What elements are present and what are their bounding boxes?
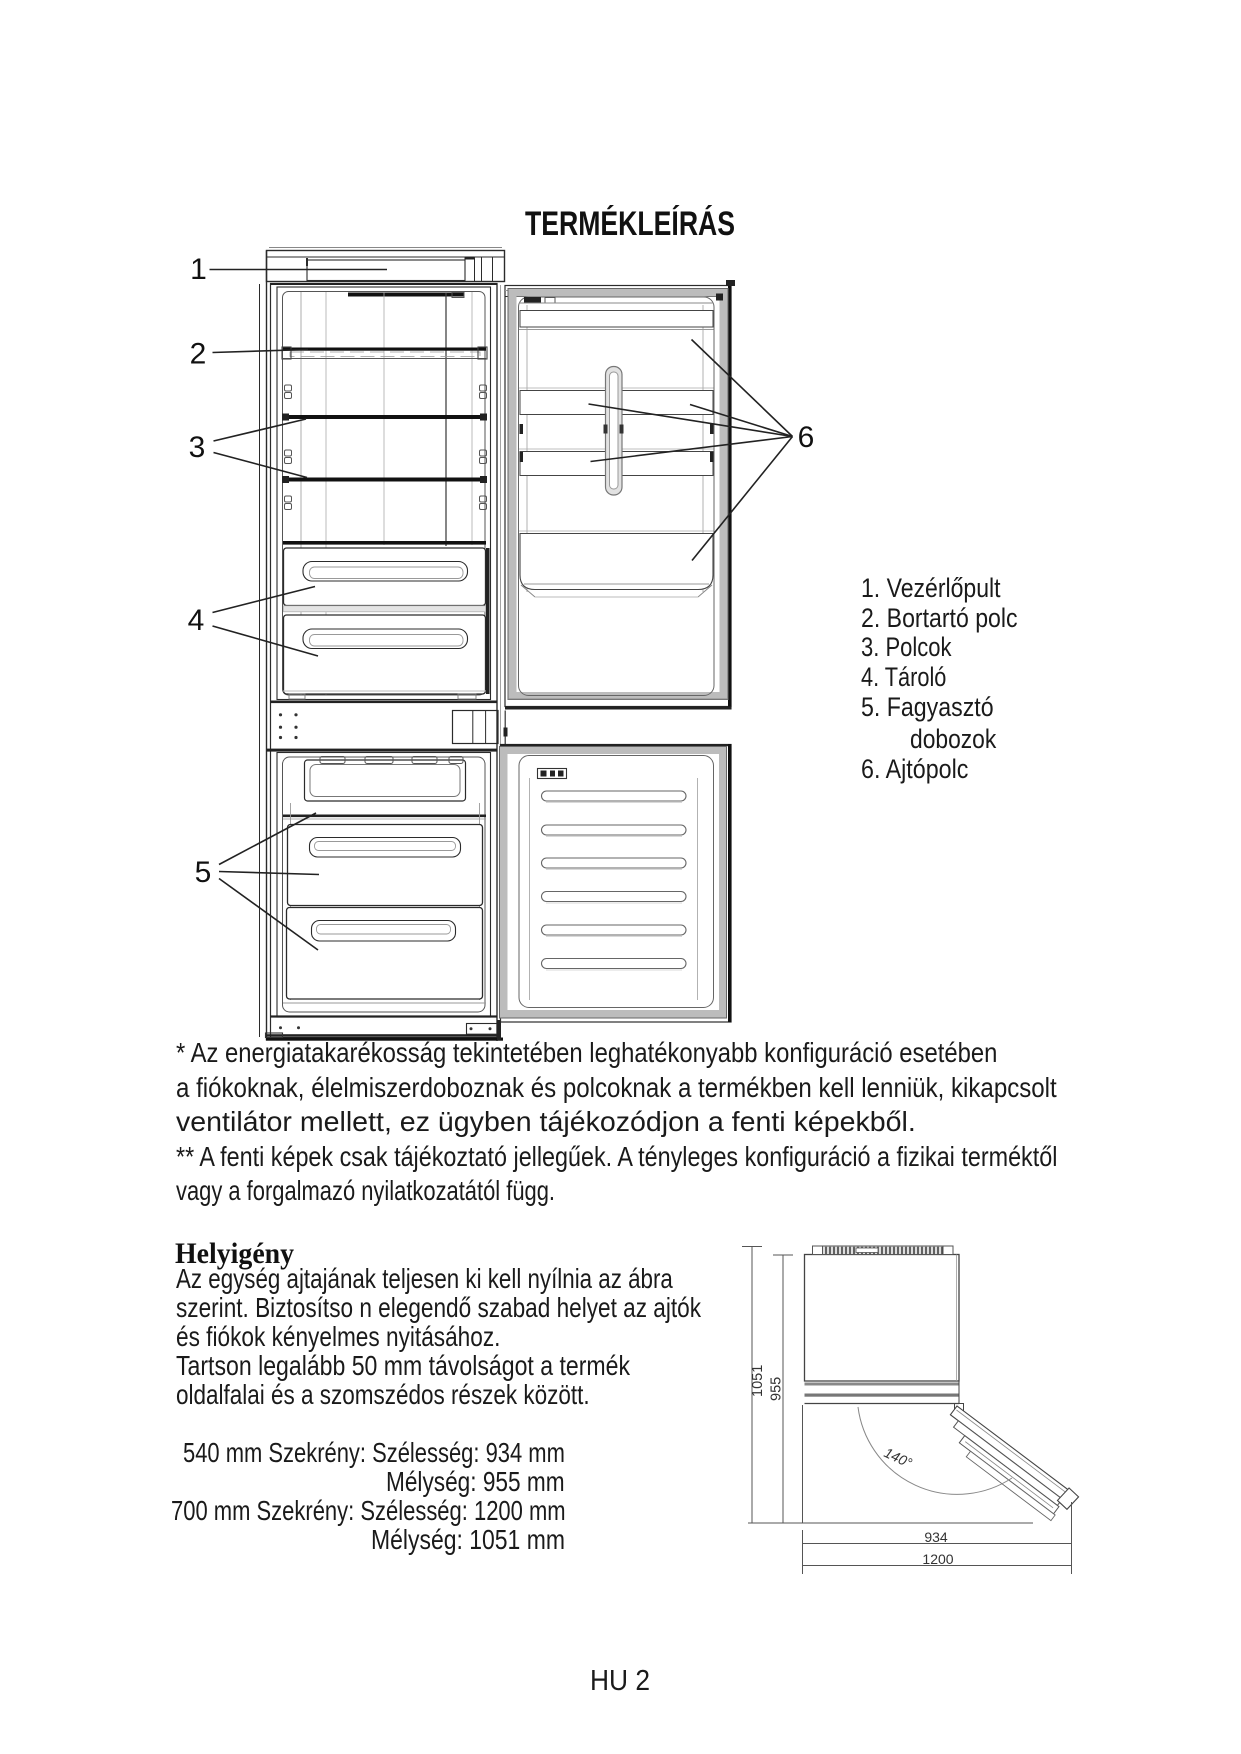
svg-text:4: 4 <box>188 604 205 637</box>
svg-text:1051: 1051 <box>750 1365 766 1397</box>
svg-text:140°: 140° <box>882 1444 915 1471</box>
svg-text:3: 3 <box>189 431 206 464</box>
svg-text:955: 955 <box>769 1377 785 1401</box>
svg-text:934: 934 <box>924 1529 948 1545</box>
svg-text:5: 5 <box>195 856 212 889</box>
svg-text:1: 1 <box>190 253 207 286</box>
svg-text:1200: 1200 <box>922 1551 953 1567</box>
svg-text:6: 6 <box>798 421 815 454</box>
svg-text:2: 2 <box>190 338 207 371</box>
